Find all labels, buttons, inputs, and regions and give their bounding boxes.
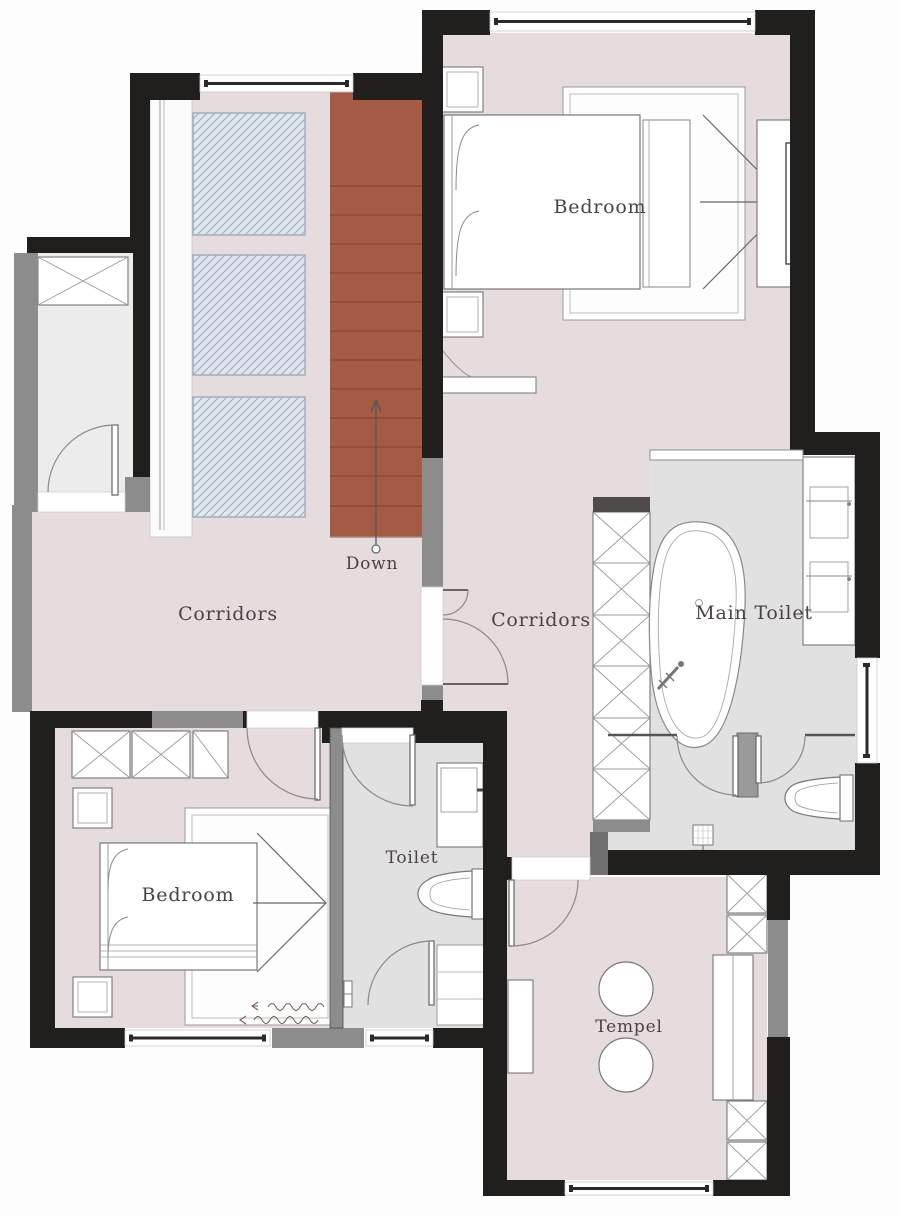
window (490, 12, 755, 31)
blanket-fold (643, 120, 690, 287)
wall-fixture (344, 981, 352, 1007)
left-room-cabinet (38, 257, 128, 305)
double-bed (100, 843, 257, 970)
label-main-toilet: Main Toilet (695, 602, 813, 624)
label-bedroom-top: Bedroom (554, 196, 647, 218)
round-seat (599, 1038, 653, 1092)
round-seat (599, 962, 653, 1016)
label-corridors-left: Corridors (178, 603, 278, 625)
linen-closet-column (593, 512, 650, 820)
label-toilet: Toilet (386, 848, 439, 868)
floor-plan-canvas: Bedroom Corridors Corridors Main Toilet … (0, 0, 900, 1215)
floor-corridor-passage (507, 743, 593, 857)
wardrobe-cabinets (72, 731, 228, 778)
nightstand (442, 67, 483, 112)
nightstand (73, 977, 112, 1017)
label-tempel: Tempel (595, 1017, 662, 1037)
glass-panels (193, 113, 305, 517)
window (125, 1030, 270, 1046)
staircase (330, 90, 422, 553)
window (857, 658, 877, 763)
label-bedroom-bottom: Bedroom (142, 884, 235, 906)
stair-railing (150, 90, 192, 537)
washbasin (437, 763, 486, 847)
label-down: Down (346, 554, 399, 574)
window (200, 75, 353, 92)
window (565, 1182, 713, 1195)
label-corridors-center: Corridors (491, 609, 591, 631)
nightstand (73, 788, 112, 828)
sideboard (713, 955, 753, 1100)
wall-shelf (508, 980, 533, 1073)
floor-plan-page: Bedroom Corridors Corridors Main Toilet … (0, 0, 900, 1215)
window (366, 1030, 433, 1046)
nightstand (442, 292, 483, 337)
shelf-unit (437, 945, 484, 1025)
